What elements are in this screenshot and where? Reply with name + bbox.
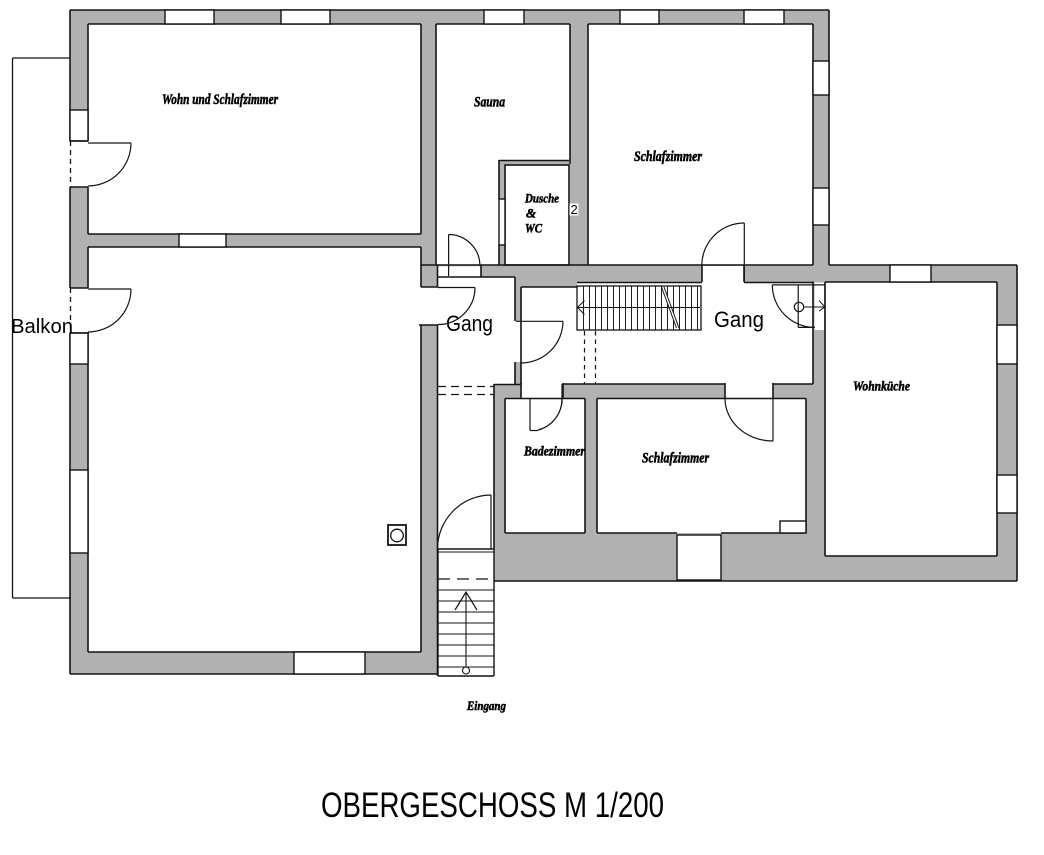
svg-text:OBERGESCHOSS M 1/200: OBERGESCHOSS M 1/200 <box>321 786 664 825</box>
svg-text:WC: WC <box>525 221 542 236</box>
svg-text:Wohnküche: Wohnküche <box>853 380 910 395</box>
svg-text:Schlafzimmer: Schlafzimmer <box>642 451 709 467</box>
svg-text:&: & <box>526 206 536 221</box>
svg-text:Schlafzimmer: Schlafzimmer <box>634 149 702 165</box>
svg-text:Gang: Gang <box>446 311 493 336</box>
svg-text:Wohn und Schlafzimmer: Wohn und Schlafzimmer <box>162 92 278 108</box>
svg-text:Badezimmer: Badezimmer <box>523 445 585 460</box>
svg-text:Balkon: Balkon <box>11 316 73 338</box>
svg-text:2: 2 <box>571 202 578 217</box>
svg-text:Sauna: Sauna <box>474 95 505 111</box>
svg-text:Dusche: Dusche <box>524 191 559 206</box>
svg-text:Gang: Gang <box>714 307 764 332</box>
svg-text:Eingang: Eingang <box>466 699 506 713</box>
